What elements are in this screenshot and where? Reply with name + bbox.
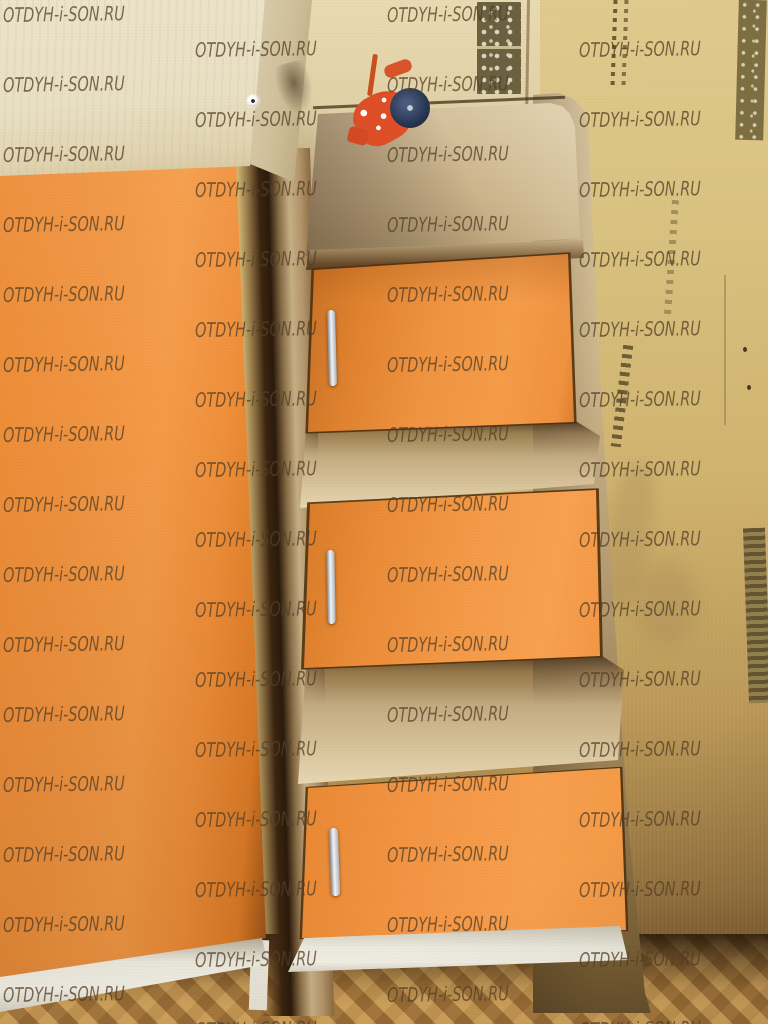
drawer-2-front bbox=[304, 490, 604, 676]
toy-arm bbox=[383, 58, 414, 80]
toy-handlebar bbox=[367, 54, 378, 96]
screw-cap bbox=[247, 95, 259, 107]
drawer-3-front bbox=[300, 768, 630, 946]
toy-foot bbox=[346, 126, 369, 146]
wardrobe-door bbox=[0, 158, 266, 986]
wallpaper-ornament-tile bbox=[477, 2, 521, 94]
upper-cabinet-front bbox=[0, 0, 268, 178]
wallpaper-dot-strip bbox=[735, 0, 767, 140]
nail-hole bbox=[743, 347, 747, 352]
drawer-1-front bbox=[306, 254, 576, 436]
drawer-2-handle bbox=[326, 550, 335, 624]
wallpaper-seam bbox=[724, 275, 726, 425]
wall-smudge bbox=[636, 560, 696, 645]
furniture-photo: OTDYH-i-SON.RUOTDYH-i-SON.RUOTDYH-i-SON.… bbox=[0, 0, 768, 1024]
nail-hole bbox=[747, 385, 751, 390]
toy-motorcycle bbox=[348, 52, 448, 152]
toy-wheel bbox=[390, 88, 430, 128]
